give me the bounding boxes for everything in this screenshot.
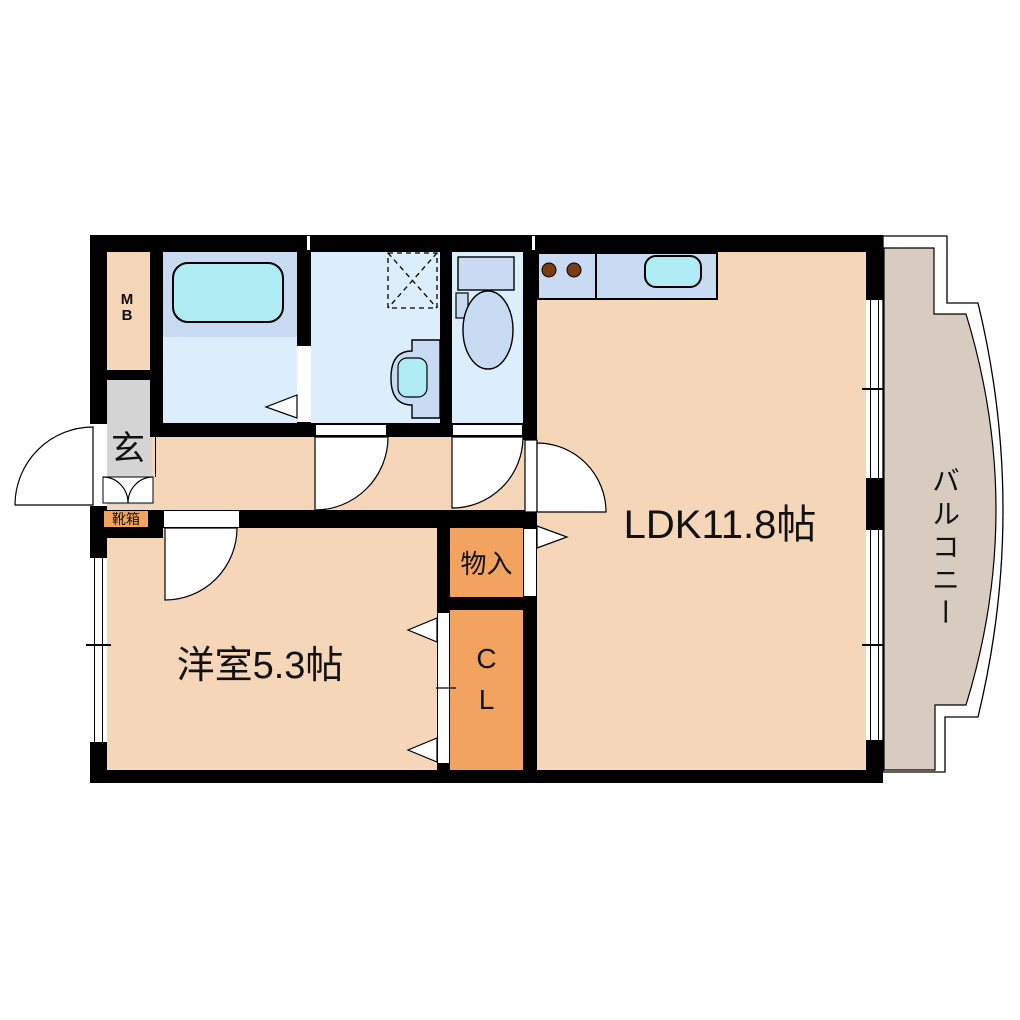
wall-bottom: [90, 770, 883, 783]
wall: [437, 597, 537, 610]
western-room-label: 洋室5.3帖: [100, 634, 420, 689]
entrance-label: 玄: [103, 421, 153, 470]
bedroom-door-opening: [163, 510, 240, 528]
wall-top: [90, 235, 883, 252]
closet-label-line1: C: [450, 638, 523, 679]
wall: [104, 370, 150, 380]
wall: [150, 423, 311, 437]
wall: [150, 235, 163, 437]
ldk-label: LDK11.8帖: [540, 492, 900, 550]
closet-label: C L: [450, 638, 523, 720]
washroom-floor: [311, 252, 440, 423]
closet-label-line2: L: [450, 679, 523, 720]
shoe-box-label: 靴箱: [104, 511, 148, 527]
window-ldk-lower: [866, 530, 883, 740]
meter-box-label: M B: [110, 292, 144, 324]
window-tick: [862, 388, 887, 390]
closet-door-opening: [437, 612, 450, 764]
balcony-label: バルコニー: [926, 438, 964, 658]
entry-door-swing-icon: [15, 427, 93, 505]
meter-box-line1: M: [110, 292, 144, 308]
wall: [437, 764, 450, 783]
wall: [440, 235, 452, 437]
wall: [523, 597, 537, 770]
meter-box-line2: B: [110, 308, 144, 324]
window-tick: [862, 644, 887, 646]
floor-plan: LDK11.8帖 洋室5.3帖 物入 C L 玄 M B 靴箱 バルコニー: [0, 0, 1020, 1020]
washroom-door-opening: [315, 424, 387, 436]
toilet-door-opening: [452, 424, 523, 436]
kitchen-sink-icon: [644, 255, 702, 288]
storage-door-opening: [523, 528, 537, 597]
toilet-room-floor: [452, 252, 523, 423]
storage-label: 物入: [450, 544, 523, 581]
kitchen-counter-divider: [595, 252, 597, 300]
bathtub-icon: [172, 262, 284, 323]
wall: [523, 235, 537, 440]
wall: [90, 510, 537, 528]
wall-joint-line: [307, 236, 310, 250]
wall-joint-line: [532, 236, 535, 250]
bathroom-door-opening: [297, 345, 311, 423]
wall: [90, 528, 163, 538]
